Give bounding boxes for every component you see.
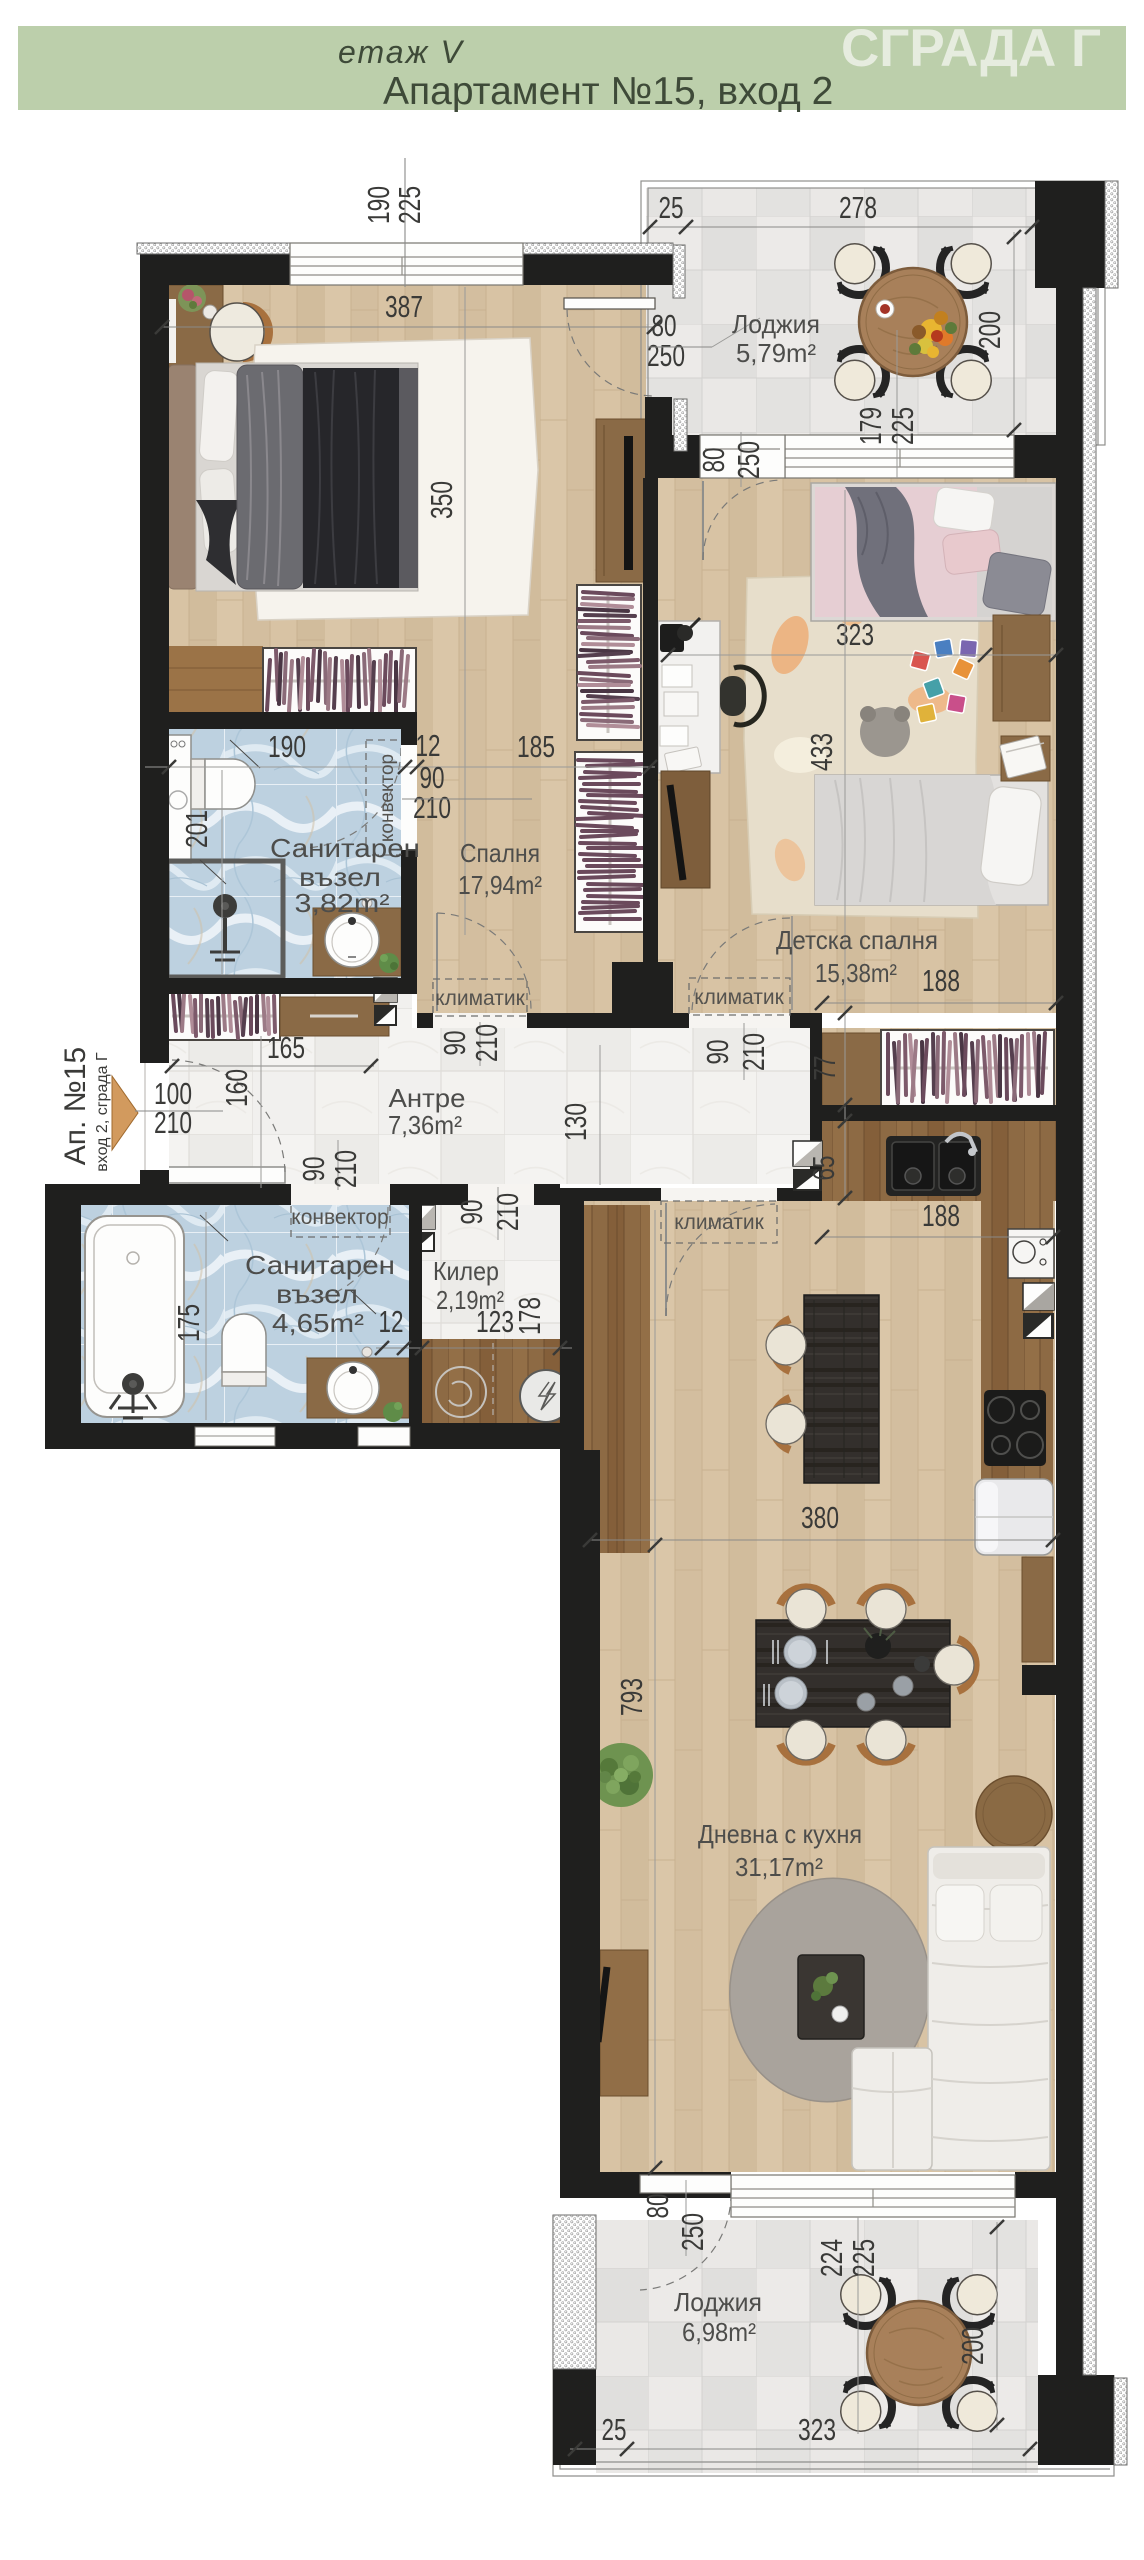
svg-text:5,79m²: 5,79m² (736, 338, 816, 368)
svg-text:210: 210 (154, 1105, 192, 1140)
svg-text:160: 160 (219, 1069, 254, 1107)
svg-text:Апартамент №15, вход 2: Апартамент №15, вход 2 (383, 70, 833, 113)
svg-text:225: 225 (846, 2239, 881, 2277)
svg-text:17,94m²: 17,94m² (458, 870, 542, 900)
svg-text:15,38m²: 15,38m² (815, 958, 897, 988)
svg-text:179: 179 (853, 407, 888, 445)
svg-text:175: 175 (171, 1304, 206, 1342)
svg-text:7,36m²: 7,36m² (388, 1110, 462, 1140)
svg-text:Антре: Антре (389, 1083, 466, 1113)
svg-text:210: 210 (469, 1024, 504, 1062)
svg-text:188: 188 (922, 1198, 960, 1233)
svg-text:380: 380 (801, 1500, 839, 1535)
svg-text:Ап. №15: Ап. №15 (59, 1047, 92, 1165)
svg-text:90: 90 (437, 1031, 472, 1056)
svg-text:130: 130 (558, 1103, 593, 1141)
svg-text:65: 65 (806, 1156, 841, 1181)
svg-text:350: 350 (424, 481, 459, 519)
svg-text:278: 278 (839, 190, 877, 225)
svg-text:210: 210 (328, 1150, 363, 1188)
svg-text:77: 77 (807, 1056, 842, 1081)
svg-text:90: 90 (454, 1200, 489, 1225)
svg-text:178: 178 (512, 1297, 547, 1335)
svg-text:Санитарен: Санитарен (245, 1250, 395, 1280)
svg-text:3,82m²: 3,82m² (295, 888, 390, 918)
svg-text:225: 225 (885, 407, 920, 445)
svg-text:2,19m²: 2,19m² (436, 1285, 504, 1315)
svg-text:Дневна с кухня: Дневна с кухня (698, 1819, 862, 1849)
svg-text:210: 210 (413, 790, 451, 825)
svg-text:Спалня: Спалня (460, 838, 540, 868)
svg-text:31,17m²: 31,17m² (735, 1852, 823, 1882)
svg-text:210: 210 (490, 1193, 525, 1231)
svg-text:климатик: климатик (674, 1211, 764, 1234)
svg-text:90: 90 (296, 1157, 331, 1182)
svg-text:възел: възел (276, 1279, 358, 1309)
svg-text:климатик: климатик (694, 986, 784, 1009)
svg-text:Килер: Килер (433, 1256, 499, 1286)
svg-text:250: 250 (647, 338, 685, 373)
svg-text:80: 80 (696, 448, 731, 473)
svg-text:4,65m²: 4,65m² (272, 1308, 364, 1338)
svg-text:6,98m²: 6,98m² (682, 2317, 756, 2347)
svg-text:225: 225 (392, 186, 427, 224)
svg-text:201: 201 (179, 810, 214, 848)
svg-text:Лоджия: Лоджия (674, 2287, 762, 2317)
svg-text:185: 185 (517, 729, 555, 764)
svg-text:190: 190 (361, 186, 396, 224)
svg-text:200: 200 (972, 311, 1007, 349)
svg-text:25: 25 (659, 190, 684, 225)
svg-text:вход 2, сграда Г: вход 2, сграда Г (94, 1052, 111, 1172)
svg-text:190: 190 (268, 729, 306, 764)
svg-text:12: 12 (416, 728, 441, 763)
svg-text:793: 793 (614, 1678, 649, 1716)
svg-text:250: 250 (675, 2213, 710, 2251)
svg-text:етаж V: етаж V (338, 34, 464, 70)
svg-text:250: 250 (731, 441, 766, 479)
svg-text:25: 25 (602, 2412, 627, 2447)
svg-text:конвектор: конвектор (291, 1206, 388, 1229)
svg-text:200: 200 (955, 2327, 990, 2365)
svg-text:323: 323 (798, 2412, 836, 2447)
svg-text:Детска спалня: Детска спалня (776, 925, 938, 955)
svg-text:224: 224 (814, 2239, 849, 2277)
svg-text:387: 387 (385, 289, 423, 324)
svg-text:165: 165 (267, 1030, 305, 1065)
svg-text:12: 12 (379, 1304, 404, 1339)
svg-text:210: 210 (736, 1033, 771, 1071)
svg-text:323: 323 (836, 617, 874, 652)
svg-text:188: 188 (922, 963, 960, 998)
svg-text:СГРАДА Г: СГРАДА Г (841, 19, 1101, 78)
svg-text:конвектор: конвектор (377, 754, 398, 842)
svg-text:90: 90 (700, 1040, 735, 1065)
svg-text:Лоджия: Лоджия (732, 309, 820, 339)
svg-text:климатик: климатик (435, 987, 525, 1010)
svg-text:433: 433 (804, 733, 839, 771)
svg-text:80: 80 (640, 2194, 675, 2219)
